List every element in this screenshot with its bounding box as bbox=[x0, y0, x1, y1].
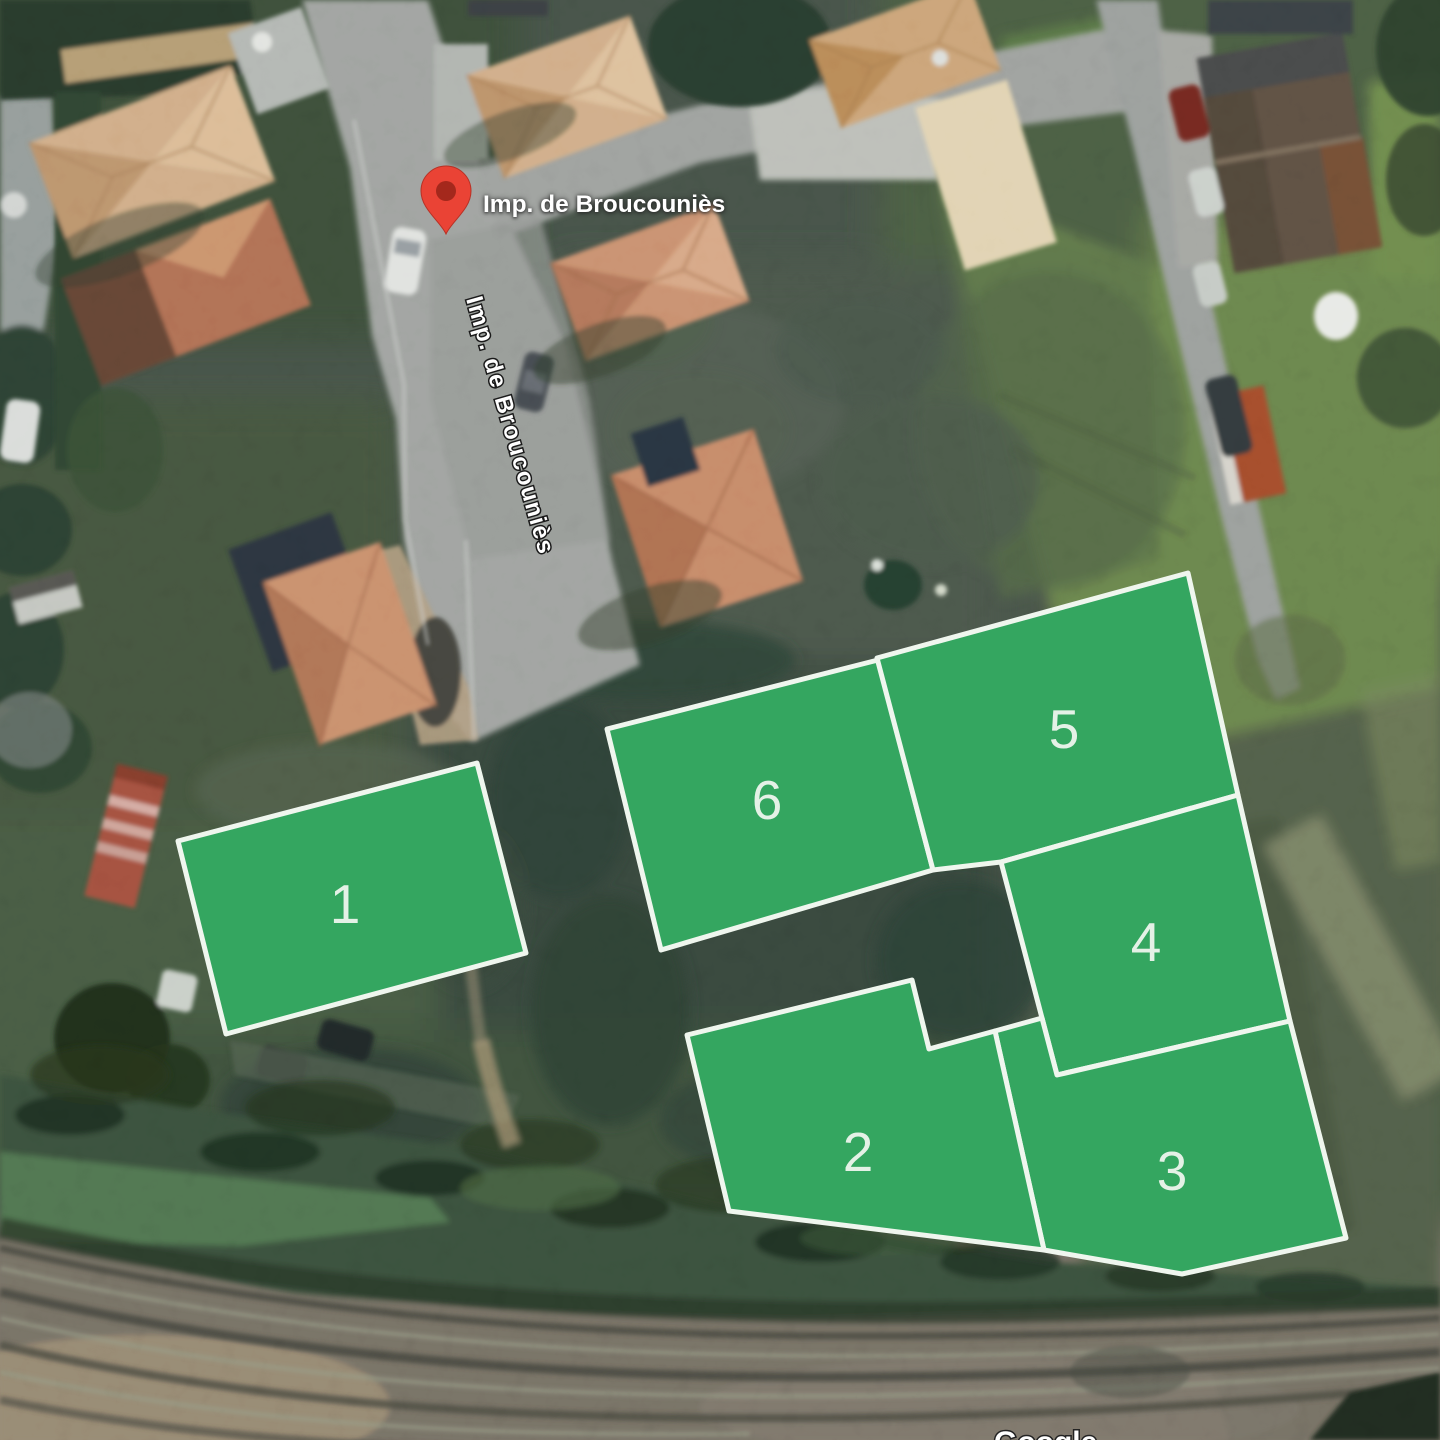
svg-text:4: 4 bbox=[1131, 911, 1162, 973]
svg-text:6: 6 bbox=[752, 769, 783, 831]
svg-text:3: 3 bbox=[1157, 1140, 1188, 1202]
svg-text:5: 5 bbox=[1049, 698, 1080, 760]
svg-text:2: 2 bbox=[843, 1121, 874, 1183]
svg-text:Google: Google bbox=[994, 1426, 1097, 1440]
svg-text:Imp. de Broucouniès: Imp. de Broucouniès bbox=[483, 191, 725, 218]
svg-text:1: 1 bbox=[330, 873, 361, 935]
